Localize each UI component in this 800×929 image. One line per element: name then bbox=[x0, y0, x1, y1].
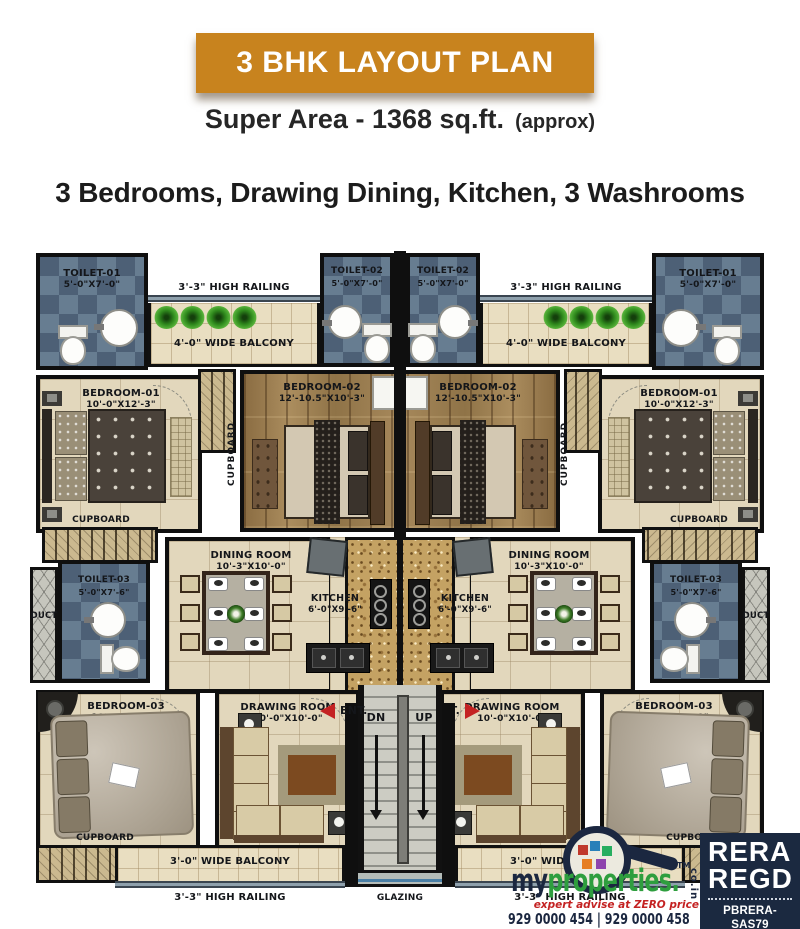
plant-icon bbox=[206, 306, 231, 329]
side-table-icon bbox=[42, 391, 62, 406]
room-toilet-02: TOILET-02 5'-0"X7'-0" bbox=[406, 253, 480, 367]
page: 3 BHK LAYOUT PLAN Super Area - 1368 sq.f… bbox=[0, 0, 800, 929]
sink-icon bbox=[328, 305, 362, 339]
sink-icon bbox=[662, 309, 700, 347]
sofa-icon bbox=[234, 805, 324, 843]
bed-icon bbox=[50, 711, 194, 840]
railing-label-bottom: 3'-3" HIGH RAILING bbox=[115, 891, 345, 904]
room-label: BEDROOM-02 12'-10.5"X10'-3" bbox=[408, 381, 548, 406]
room-label: TOILET-03 5'-0"X7'-6" bbox=[654, 575, 738, 597]
room-toilet-01: TOILET-01 5'-0"X7'-0" bbox=[36, 253, 148, 370]
room-label: BEDROOM-02 12'-10.5"X10'-3" bbox=[252, 381, 392, 406]
duct-label: DUCT bbox=[27, 611, 61, 622]
bed-icon bbox=[252, 425, 396, 519]
sink-icon bbox=[90, 602, 126, 638]
features-line: 3 Bedrooms, Drawing Dining, Kitchen, 3 W… bbox=[0, 176, 800, 210]
plant-icon bbox=[154, 306, 179, 329]
brand-name: myproperties. bbox=[511, 866, 679, 897]
room-label: TOILET-02 5'-0"X7'-0" bbox=[410, 266, 476, 288]
cupboard-label: CUPBOARD bbox=[644, 515, 754, 527]
toilet-icon bbox=[100, 646, 138, 676]
balcony-bottom-label: 3'-0" WIDE BALCONY bbox=[115, 855, 345, 868]
rera-number-1: PBRERA-SAS79 bbox=[708, 904, 792, 929]
dining-table-icon bbox=[506, 563, 622, 663]
side-table-icon bbox=[738, 391, 758, 406]
room-toilet-03: TOILET-03 5'-0"X7'-6" bbox=[58, 560, 150, 683]
divider bbox=[708, 898, 792, 900]
title-banner: 3 BHK LAYOUT PLAN bbox=[196, 33, 594, 93]
room-label: KITCHEN 6'-0"X9'-6" bbox=[292, 593, 378, 616]
railing-top bbox=[148, 295, 320, 302]
plant-icon bbox=[595, 306, 620, 329]
room-label: TOILET-03 5'-0"X7'-6" bbox=[62, 575, 146, 597]
room-label: BEDROOM-01 10'-0"X12'-3" bbox=[50, 387, 192, 412]
dn-label: DN bbox=[360, 711, 392, 725]
kitchen-sink-icon bbox=[430, 643, 494, 673]
fridge-icon bbox=[452, 537, 494, 577]
cupboard-label: CUPBOARD bbox=[50, 833, 160, 845]
rera-line2: REGD bbox=[708, 865, 792, 892]
rug-icon bbox=[454, 745, 522, 805]
bed-icon bbox=[608, 409, 758, 503]
room-label: TOILET-01 5'-0"X7'-0" bbox=[658, 267, 758, 292]
toilet-icon bbox=[714, 325, 744, 363]
toilet-icon bbox=[662, 646, 700, 676]
dn-arrow-icon bbox=[375, 735, 378, 811]
plant-icon bbox=[180, 306, 205, 329]
super-area-line: Super Area - 1368 sq.ft. (approx) bbox=[0, 103, 800, 135]
bed-icon bbox=[42, 409, 192, 503]
room-toilet-01: TOILET-01 5'-0"X7'-0" bbox=[652, 253, 764, 370]
duct bbox=[30, 567, 58, 683]
ent-arrow-icon bbox=[465, 703, 480, 719]
glazing-strip bbox=[352, 870, 448, 887]
glazing-label: GLAZING bbox=[352, 893, 448, 905]
cupboard bbox=[42, 527, 158, 563]
plant-icon bbox=[621, 306, 646, 329]
balcony-top-label: 4'-0" WIDE BALCONY bbox=[148, 337, 320, 350]
ent-arrow-icon bbox=[320, 703, 335, 719]
phone-numbers: 929 0000 454 | 929 0000 458 bbox=[508, 912, 690, 927]
duct-label: DUCT bbox=[739, 611, 773, 622]
plant-icon bbox=[232, 306, 257, 329]
rera-line1: RERA bbox=[708, 838, 792, 865]
brand-logo: myproperties. TM co.in expert advise at … bbox=[505, 824, 705, 929]
room-label: BEDROOM-01 10'-0"X12'-3" bbox=[608, 387, 750, 412]
toilet-icon bbox=[56, 325, 86, 363]
center-wall bbox=[394, 251, 406, 367]
kitchen-sink-icon bbox=[306, 643, 370, 673]
center-wall bbox=[394, 367, 406, 537]
room-toilet-03: TOILET-03 5'-0"X7'-6" bbox=[650, 560, 742, 683]
railing-label-top: 3'-3" HIGH RAILING bbox=[480, 281, 652, 294]
brand-tagline: expert advise at ZERO price bbox=[534, 900, 699, 911]
railing-top bbox=[480, 295, 652, 302]
cupboard-label: CUPBOARD bbox=[227, 395, 240, 513]
toilet-icon bbox=[410, 323, 440, 361]
railing-bottom bbox=[115, 881, 345, 888]
cupboard-label: CUPBOARD bbox=[560, 395, 573, 513]
stair-wall bbox=[345, 703, 358, 887]
page-title: 3 BHK LAYOUT PLAN bbox=[236, 48, 553, 78]
sink-icon bbox=[674, 602, 710, 638]
fridge-icon bbox=[306, 537, 348, 577]
room-label: TOILET-02 5'-0"X7'-0" bbox=[324, 266, 390, 288]
super-area-text: Super Area - 1368 sq.ft. bbox=[205, 104, 504, 134]
rug-icon bbox=[278, 745, 346, 805]
balcony-top-label: 4'-0" WIDE BALCONY bbox=[480, 337, 652, 350]
room-toilet-02: TOILET-02 5'-0"X7'-0" bbox=[320, 253, 394, 367]
cupboard bbox=[642, 527, 758, 563]
cupboard-label: CUPBOARD bbox=[46, 515, 156, 527]
bed-icon bbox=[606, 711, 750, 840]
plant-icon bbox=[569, 306, 594, 329]
rera-badge: RERA REGD PBRERA-SAS79 REA0630 bbox=[700, 833, 800, 929]
room-label: TOILET-01 5'-0"X7'-0" bbox=[42, 267, 142, 292]
duct bbox=[742, 567, 770, 683]
bed-icon bbox=[404, 425, 548, 519]
railing-label-top: 3'-3" HIGH RAILING bbox=[148, 281, 320, 294]
sink-icon bbox=[100, 309, 138, 347]
plant-icon bbox=[543, 306, 568, 329]
dining-table-icon bbox=[178, 563, 294, 663]
approx-text: (approx) bbox=[515, 111, 595, 133]
room-label: KITCHEN 6'-0"X9'-6" bbox=[422, 593, 508, 616]
sink-icon bbox=[438, 305, 472, 339]
toilet-icon bbox=[360, 323, 390, 361]
up-label: UP bbox=[408, 711, 440, 725]
up-arrow-icon bbox=[422, 735, 425, 811]
brand-domain: co.in bbox=[688, 868, 698, 900]
stair-wall bbox=[442, 703, 455, 887]
